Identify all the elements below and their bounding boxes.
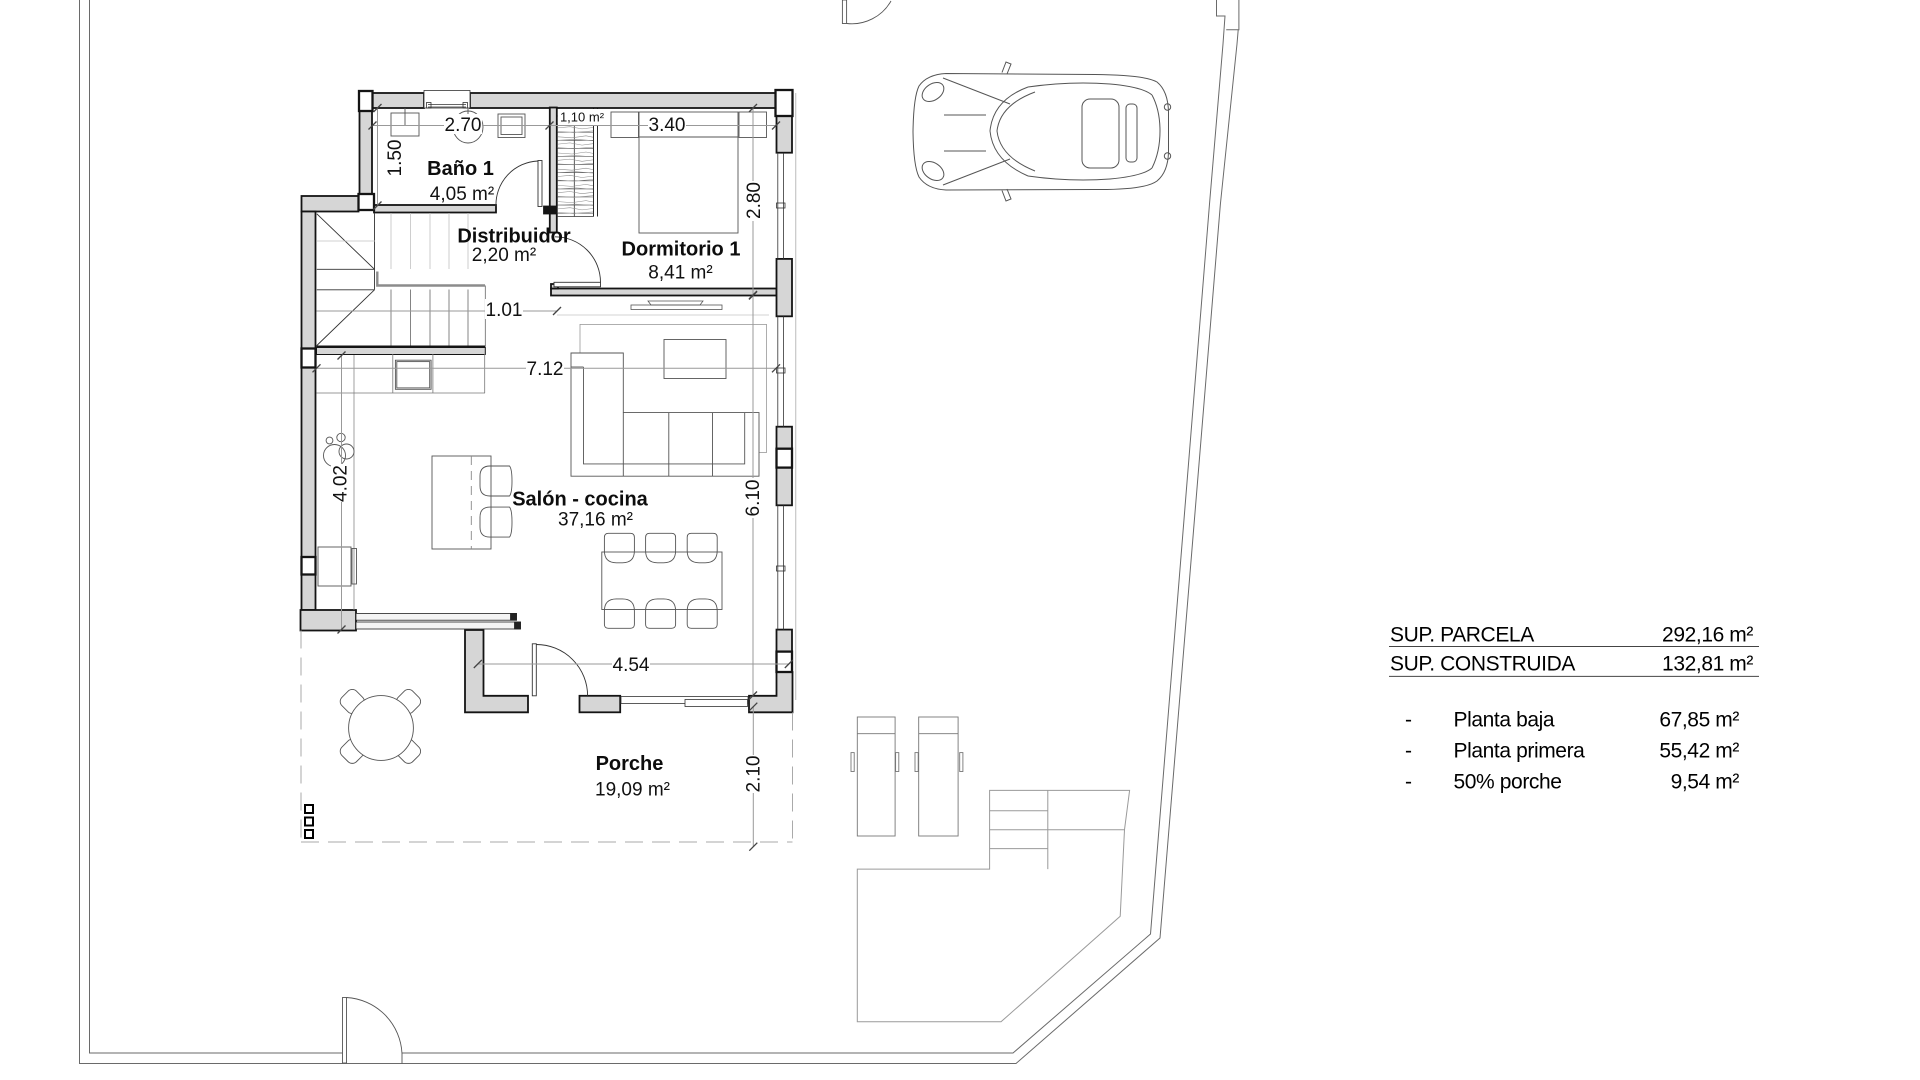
svg-text:4.54: 4.54 bbox=[613, 655, 650, 676]
svg-text:67,85 m²: 67,85 m² bbox=[1659, 709, 1739, 732]
svg-text:3.40: 3.40 bbox=[649, 115, 686, 136]
svg-text:-: - bbox=[1405, 771, 1412, 794]
svg-text:8,41 m²: 8,41 m² bbox=[648, 263, 712, 284]
svg-text:Planta primera: Planta primera bbox=[1454, 740, 1586, 763]
svg-text:Dormitorio 1: Dormitorio 1 bbox=[622, 239, 741, 261]
svg-text:-: - bbox=[1405, 709, 1412, 732]
svg-text:SUP. CONSTRUIDA: SUP. CONSTRUIDA bbox=[1390, 653, 1575, 676]
svg-text:1,10 m²: 1,10 m² bbox=[560, 110, 605, 125]
svg-text:2.80: 2.80 bbox=[744, 182, 765, 219]
svg-text:50% porche: 50% porche bbox=[1454, 771, 1562, 794]
svg-text:2.70: 2.70 bbox=[445, 115, 482, 136]
svg-text:7.12: 7.12 bbox=[527, 359, 564, 380]
svg-text:4,05 m²: 4,05 m² bbox=[430, 184, 494, 205]
svg-text:6.10: 6.10 bbox=[743, 480, 764, 517]
svg-text:Salón - cocina: Salón - cocina bbox=[512, 489, 648, 511]
svg-text:-: - bbox=[1405, 740, 1412, 763]
svg-text:SUP. PARCELA: SUP. PARCELA bbox=[1390, 624, 1534, 647]
svg-text:132,81 m²: 132,81 m² bbox=[1662, 653, 1753, 676]
svg-text:2.10: 2.10 bbox=[744, 756, 765, 793]
svg-text:Porche: Porche bbox=[596, 753, 664, 775]
svg-text:4.02: 4.02 bbox=[331, 465, 352, 502]
svg-text:Planta baja: Planta baja bbox=[1454, 709, 1555, 732]
svg-text:19,09 m²: 19,09 m² bbox=[595, 780, 670, 801]
svg-text:1.50: 1.50 bbox=[385, 140, 406, 177]
svg-text:Baño 1: Baño 1 bbox=[427, 158, 494, 180]
svg-text:292,16 m²: 292,16 m² bbox=[1662, 624, 1753, 647]
svg-text:2,20 m²: 2,20 m² bbox=[472, 245, 536, 266]
svg-text:1.01: 1.01 bbox=[486, 300, 523, 321]
svg-text:9,54 m²: 9,54 m² bbox=[1671, 771, 1740, 794]
svg-text:55,42 m²: 55,42 m² bbox=[1659, 740, 1739, 763]
svg-text:37,16 m²: 37,16 m² bbox=[558, 510, 633, 531]
